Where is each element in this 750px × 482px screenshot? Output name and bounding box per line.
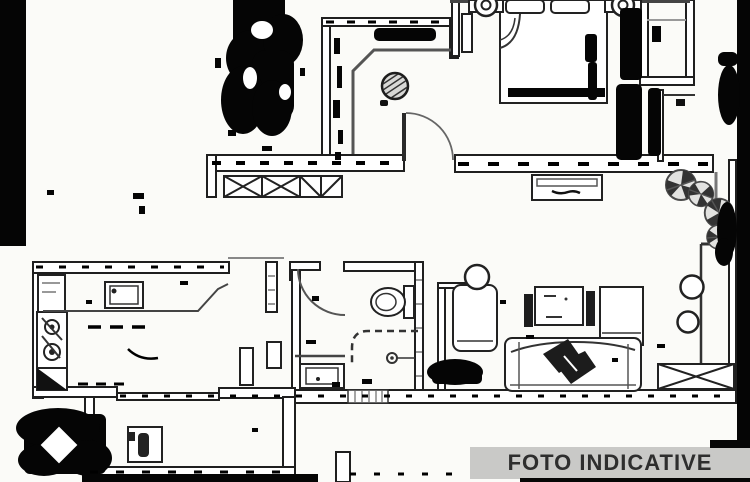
- plant-table-icon: [380, 66, 414, 110]
- toilet-icon: [371, 286, 414, 318]
- floor-plan-page: FOTO INDICATIVE: [0, 0, 750, 482]
- door-arc: [298, 269, 345, 315]
- sofa: [505, 338, 641, 391]
- pillow: [551, 0, 589, 13]
- bathroom-fixtures: [295, 269, 418, 388]
- banner-label: FOTO INDICATIVE: [508, 450, 713, 476]
- shower-icon: [352, 331, 418, 363]
- bench: [532, 175, 602, 200]
- tv-cabinet: [535, 287, 583, 325]
- round-stool: [681, 276, 704, 299]
- corner-cabinet: [37, 368, 67, 390]
- banner-bottom-bar: [520, 478, 750, 482]
- pillow: [506, 0, 544, 13]
- door-arc: [406, 113, 453, 160]
- side-table: [465, 265, 489, 289]
- kitchen-sink-icon: [105, 282, 143, 308]
- stove-icon: [37, 312, 67, 368]
- washing-machine-icon: [128, 427, 162, 462]
- entry-door: [402, 113, 453, 161]
- tall-cabinet: [600, 287, 643, 345]
- round-stool: [678, 312, 699, 333]
- living-room-furniture: [453, 170, 736, 391]
- photo-indicative-banner: FOTO INDICATIVE: [470, 447, 750, 479]
- scan-artifacts: [0, 0, 750, 482]
- kitchen-fixtures: [37, 275, 281, 390]
- armchair: [453, 285, 497, 351]
- floor-plan-drawing: [0, 0, 750, 482]
- radiator-window-icon: [224, 176, 342, 197]
- corner-artifact: [710, 440, 750, 448]
- lamp-icon: [475, 0, 497, 16]
- laundry-room: [128, 427, 162, 462]
- window-x-icon: [658, 364, 734, 389]
